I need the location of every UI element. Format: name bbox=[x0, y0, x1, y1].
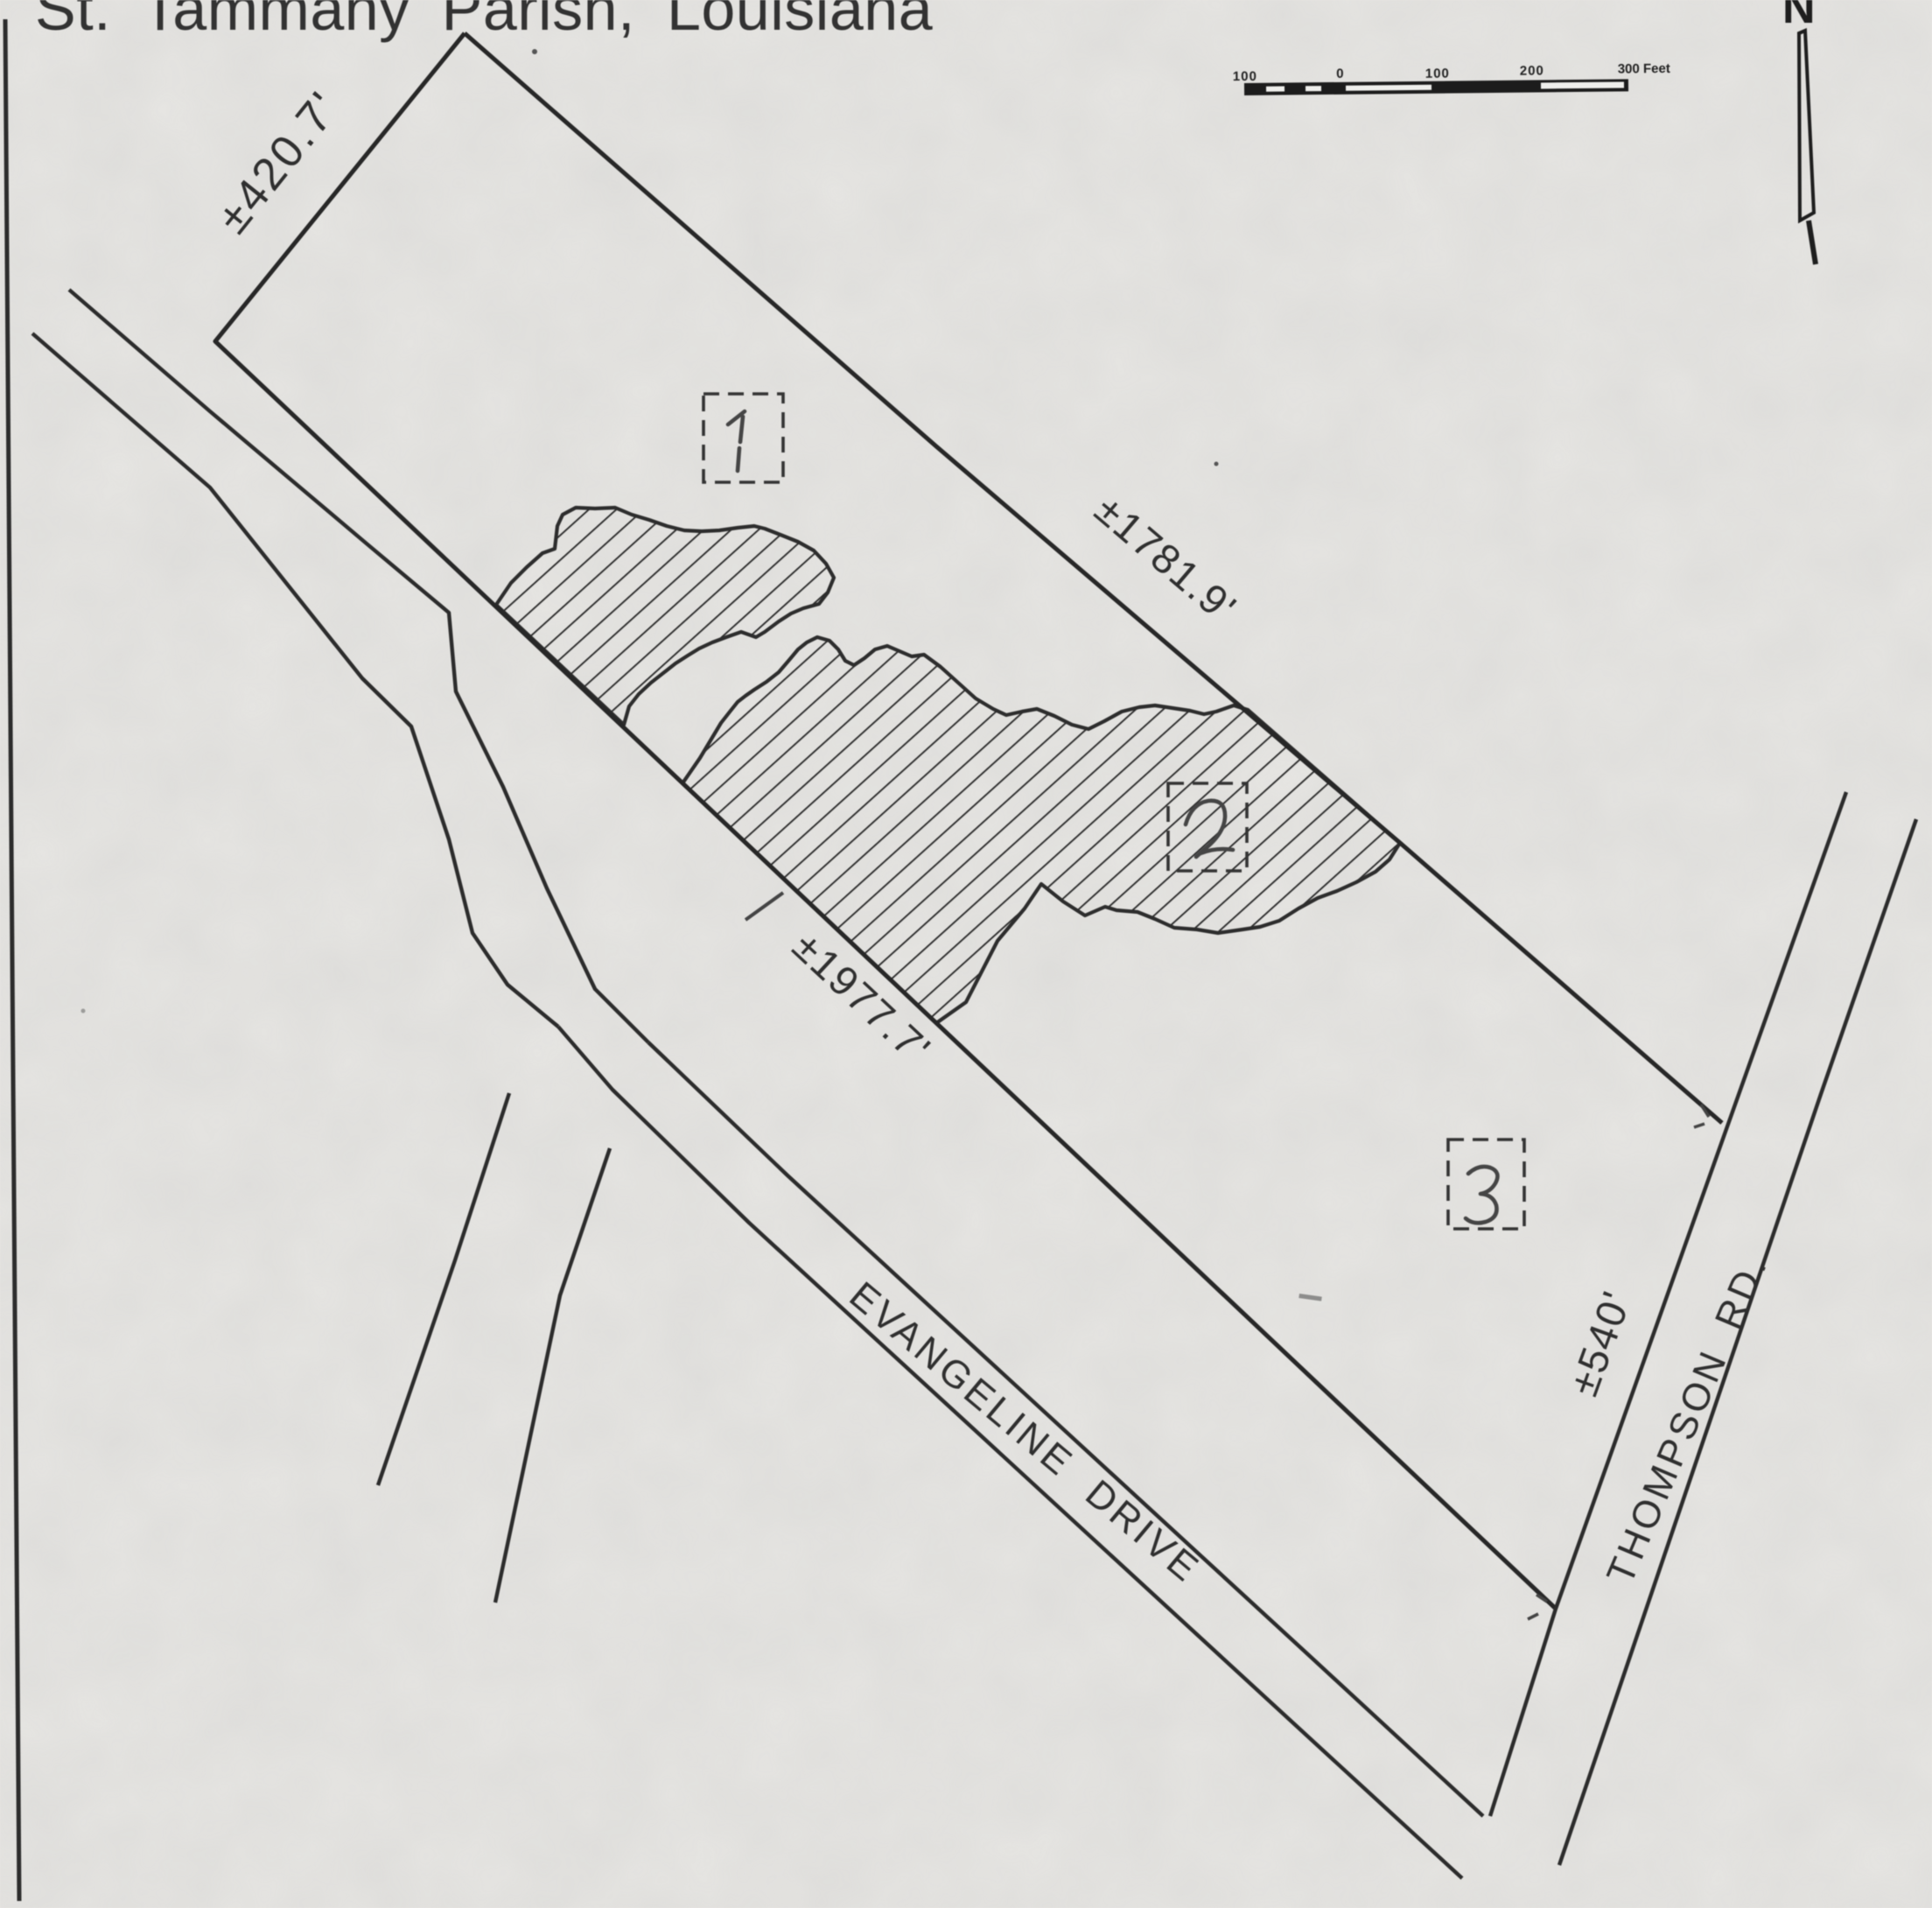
svg-text:200: 200 bbox=[1520, 63, 1544, 78]
svg-text:100: 100 bbox=[1425, 67, 1450, 81]
svg-text:N: N bbox=[1782, 0, 1816, 33]
svg-text:300 Feet: 300 Feet bbox=[1618, 61, 1670, 77]
svg-text:100: 100 bbox=[1233, 69, 1257, 84]
svg-text:0: 0 bbox=[1336, 67, 1345, 81]
svg-text:St. Tammany Parish, Louisia: St. Tammany Parish, Louisiana bbox=[35, 0, 933, 43]
